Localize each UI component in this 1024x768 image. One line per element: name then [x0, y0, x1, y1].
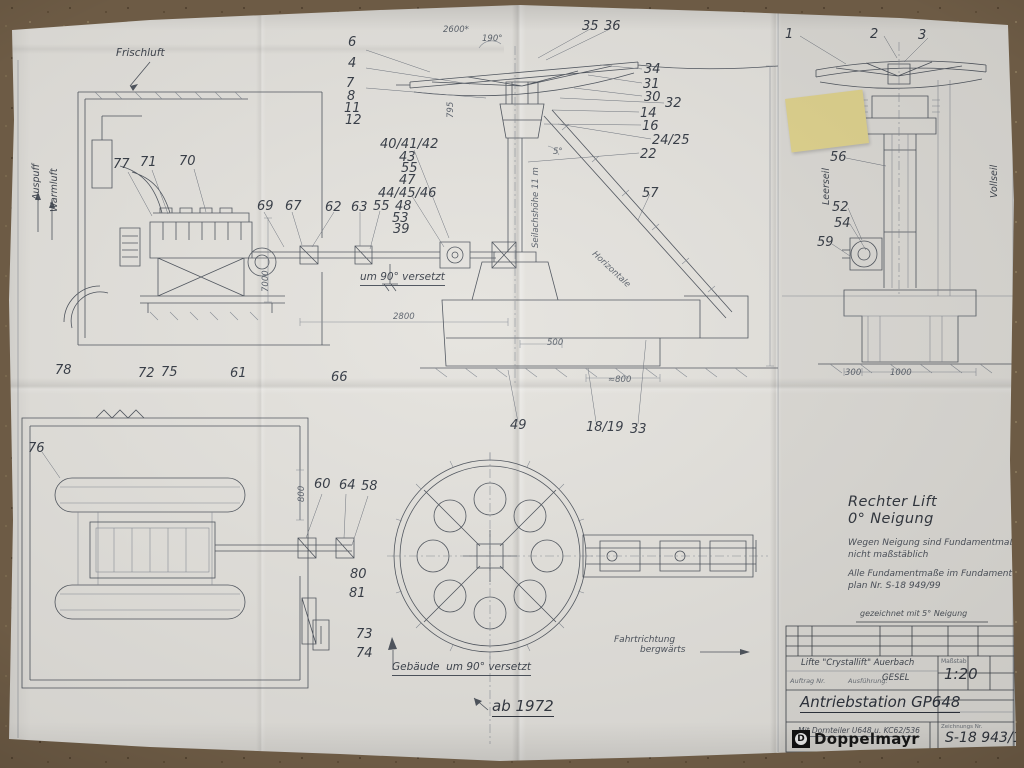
lift-note-text: Wegen Neigung sind Fundamentmaße: [848, 537, 1024, 549]
handwritten-note: ab 1972: [492, 698, 554, 717]
part-number-label: 60: [314, 478, 331, 492]
part-number-label: 34: [644, 63, 661, 77]
part-number-label: 33: [630, 423, 647, 437]
dimension-label: 795: [447, 102, 456, 118]
handwritten-note: bergwärts: [640, 646, 685, 656]
lift-note-title: Rechter Lift: [848, 494, 1024, 511]
lift-note-text: Alle Fundamentmaße im Fundament-: [848, 568, 1024, 580]
dimension-label: 5°: [553, 148, 563, 157]
part-number-label: 39: [393, 223, 410, 237]
dimension-label: 800: [298, 486, 307, 502]
dimension-label: 2800: [393, 313, 415, 322]
part-number-label: 70: [179, 155, 196, 169]
lift-note-text: nicht maßstäblich: [848, 549, 1024, 561]
part-number-label: 18/19: [586, 421, 623, 435]
annotation-label: Warmluft: [50, 168, 60, 212]
part-number-label: 71: [140, 156, 157, 170]
part-number-label: 80: [350, 568, 367, 582]
order-number-label: Auftrag Nr.: [790, 678, 825, 685]
part-number-label: 1: [785, 28, 793, 42]
part-number-label: 30: [644, 91, 661, 105]
part-number-label: 75: [161, 366, 178, 380]
photo-scene: 6478111240/41/4243554744/45/464853397771…: [0, 0, 1024, 768]
doppelmayr-logo-letter: D: [795, 733, 807, 745]
dimension-label: 7000: [262, 270, 271, 292]
drawn-with-note: gezeichnet mit 5° Neigung: [860, 610, 967, 618]
part-number-label: 56: [830, 151, 847, 165]
part-number-label: 66: [331, 371, 348, 385]
part-number-label: 77: [113, 158, 130, 172]
dimension-label: 2600*: [443, 26, 469, 35]
part-number-label: 35: [582, 20, 599, 34]
part-number-label: 74: [356, 647, 373, 661]
dimension-label: 300: [845, 369, 861, 378]
part-number-label: 52: [832, 201, 849, 215]
drawing-number: S-18 943/1: [945, 731, 1022, 745]
lift-note-text: plan Nr. S-18 949/99: [848, 580, 1024, 592]
part-number-label: 2: [870, 28, 878, 42]
dimension-label: 1000: [890, 369, 912, 378]
dimension-label: 190°: [482, 35, 502, 44]
order-handwritten-line: Lifte "Crystallift" Auerbach: [801, 659, 914, 668]
part-number-label: 62: [325, 201, 342, 215]
annotation-label: Gebäude um 90° versetzt: [392, 662, 531, 676]
part-number-label: 72: [138, 367, 155, 381]
part-number-label: 57: [642, 187, 659, 201]
company-name: Doppelmayr: [814, 731, 919, 748]
part-number-label: 36: [604, 20, 621, 34]
part-number-label: 67: [285, 200, 302, 214]
execution-value: GESEL: [882, 674, 909, 683]
part-number-label: 63: [351, 201, 368, 215]
part-number-label: 55: [373, 200, 390, 214]
dimension-label: Seilachshöhe 11 m: [532, 167, 541, 248]
part-number-label: 61: [230, 367, 247, 381]
part-number-label: 24/25: [652, 134, 689, 148]
drawing-title: Antriebstation GP648: [800, 695, 960, 713]
part-number-label: 49: [510, 419, 527, 433]
annotation-label: Auspuff: [32, 164, 42, 200]
part-number-label: 6: [348, 36, 356, 50]
part-number-label: 3: [918, 29, 926, 43]
part-number-label: 81: [349, 587, 366, 601]
annotation-label: Leerseil: [822, 168, 832, 205]
part-number-label: 22: [640, 148, 657, 162]
annotation-label: Frischluft: [116, 48, 165, 60]
dimension-label: Horizontale: [590, 250, 632, 290]
dimension-label: ≈800: [608, 376, 631, 385]
part-number-label: 76: [28, 442, 45, 456]
part-number-label: 58: [361, 480, 378, 494]
drawing-sheet: 6478111240/41/4243554744/45/464853397771…: [0, 0, 1024, 768]
dimension-label: 500: [547, 339, 563, 348]
lift-note-block: Rechter Lift 0° Neigung Wegen Neigung si…: [848, 494, 1024, 592]
annotation-label: Vollseil: [990, 165, 1000, 198]
part-number-label: 54: [834, 217, 851, 231]
part-number-label: 69: [257, 200, 274, 214]
lift-note-subtitle: 0° Neigung: [848, 511, 1024, 528]
labels-layer: 6478111240/41/4243554744/45/464853397771…: [0, 0, 1024, 768]
part-number-label: 64: [339, 479, 356, 493]
part-number-label: 73: [356, 628, 373, 642]
scale-value: 1:20: [944, 667, 978, 682]
part-number-label: 32: [665, 97, 682, 111]
part-number-label: 4: [348, 57, 356, 71]
part-number-label: 78: [55, 364, 72, 378]
annotation-label: um 90° versetzt: [360, 272, 445, 286]
doppelmayr-logo-icon: D: [792, 730, 810, 748]
part-number-label: 12: [345, 114, 362, 128]
part-number-label: 59: [817, 236, 834, 250]
